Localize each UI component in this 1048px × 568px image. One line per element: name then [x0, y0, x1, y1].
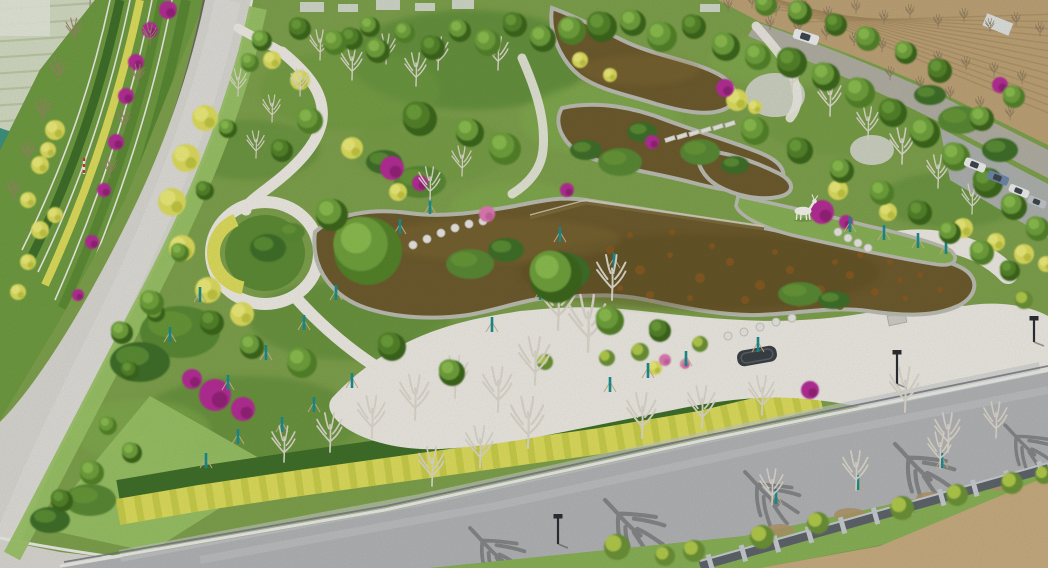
aerial-park-photograph [0, 0, 1048, 568]
park-scene [0, 0, 1048, 568]
photo-grain [0, 0, 1048, 568]
